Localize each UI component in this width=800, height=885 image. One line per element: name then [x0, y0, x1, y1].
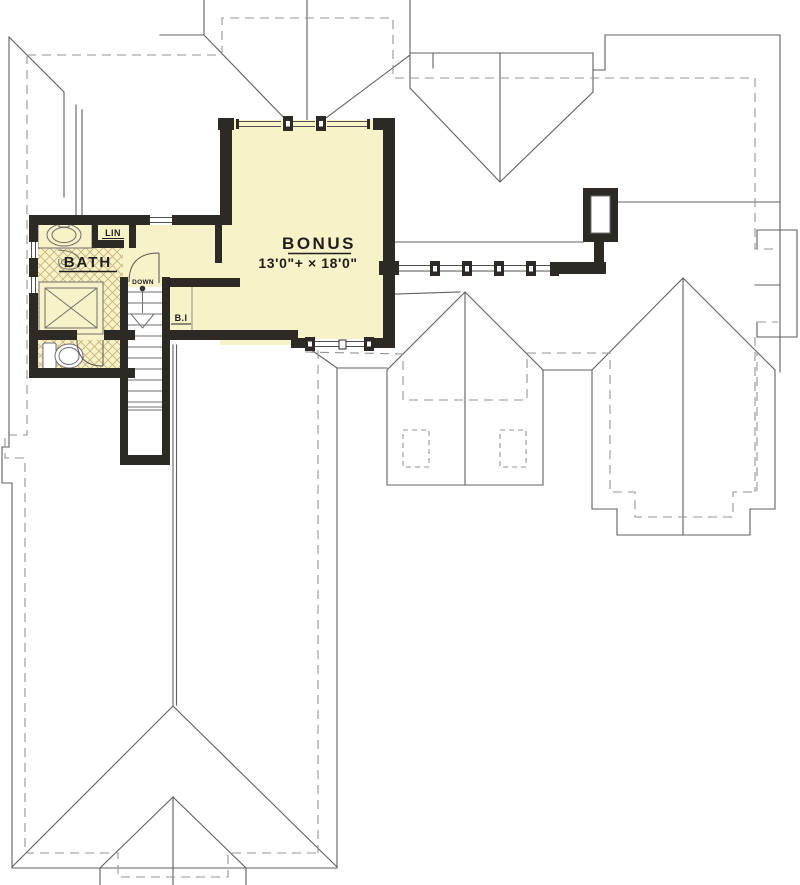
chimney — [583, 188, 618, 242]
bonus-room-label: BONUS — [282, 234, 356, 253]
floor-plan-page: BONUS 13'0"+ × 18'0" BATH LIN B.I DOWN — [0, 0, 800, 885]
toilet — [43, 343, 83, 369]
shower — [39, 282, 103, 334]
bath-room-label: BATH — [64, 254, 113, 271]
bonus-room-dimensions: 13'0"+ × 18'0" — [258, 255, 357, 271]
built-in-label: B.I — [175, 313, 188, 323]
linen-closet-label: LIN — [105, 228, 121, 238]
floor-plan-drawing: BONUS 13'0"+ × 18'0" BATH LIN B.I DOWN — [0, 0, 800, 885]
stairs-down-label: DOWN — [132, 279, 154, 286]
